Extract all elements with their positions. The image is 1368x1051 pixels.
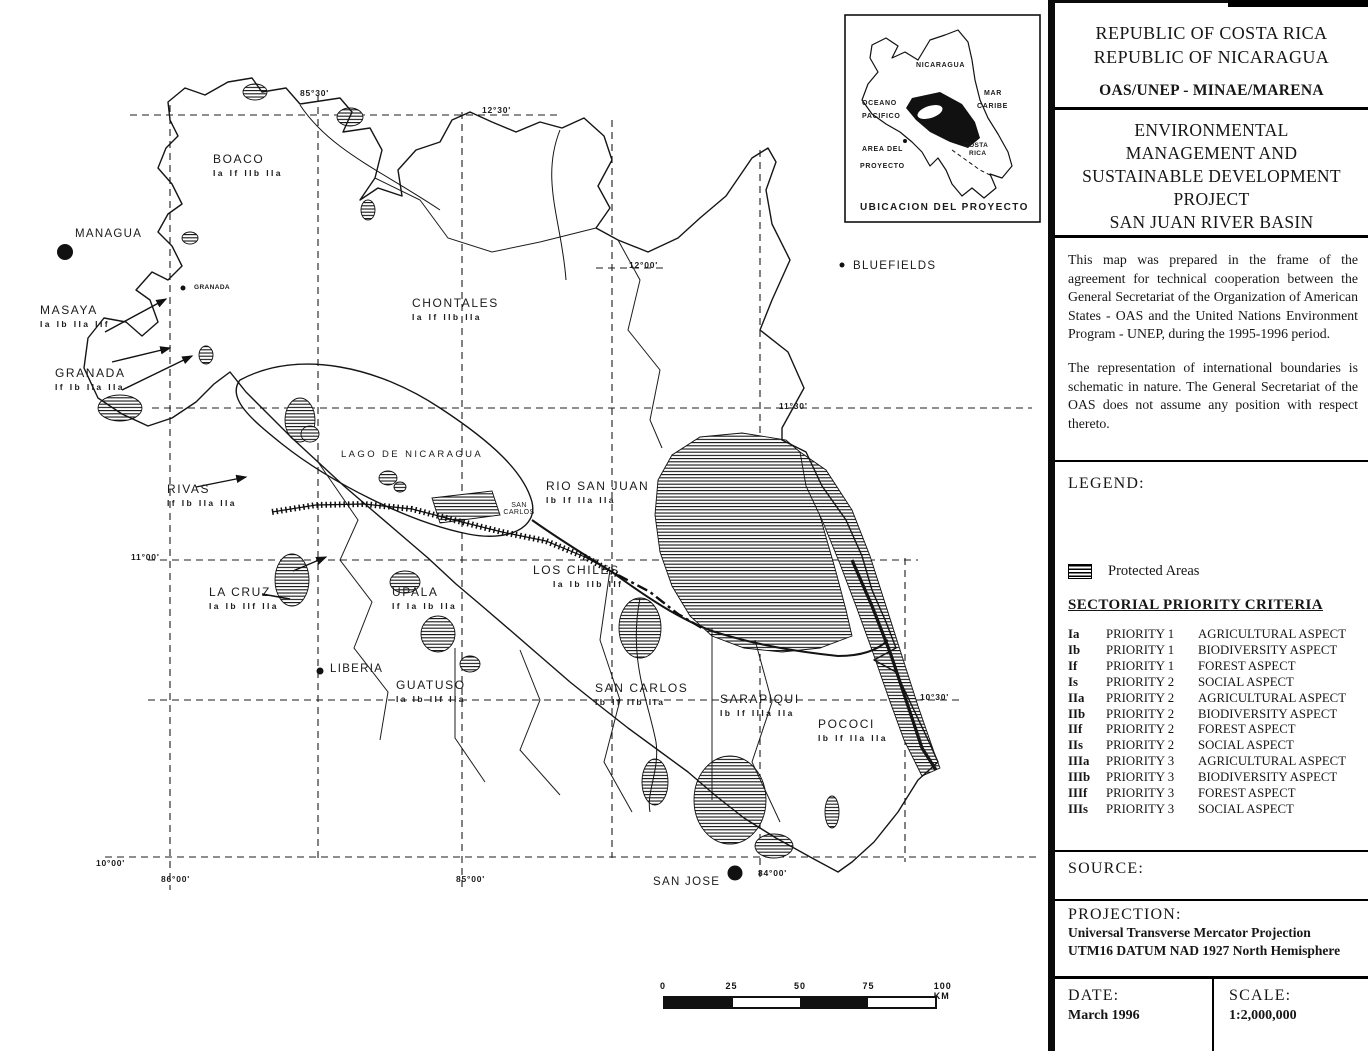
liberia-dot [317, 668, 324, 675]
scalebar-bar [663, 996, 937, 1009]
project-title-line: SAN JUAN RIVER BASIN [1055, 211, 1368, 234]
date-scale-block: DATE: March 1996 SCALE: 1:2,000,000 [1055, 979, 1368, 1051]
criteria-priority: PRIORITY 2 [1106, 738, 1198, 754]
scale-value: 1:2,000,000 [1229, 1008, 1368, 1024]
project-title-line: PROJECT [1055, 188, 1368, 211]
criteria-aspect: SOCIAL ASPECT [1198, 738, 1294, 754]
legend-heading: LEGEND: [1068, 475, 1360, 493]
date-label: DATE: [1068, 987, 1212, 1005]
criteria-priority: PRIORITY 2 [1106, 675, 1198, 691]
criteria-code: IIIa [1068, 754, 1106, 770]
criteria-aspect: FOREST ASPECT [1198, 722, 1296, 738]
protected-areas-swatch-icon [1068, 564, 1092, 579]
criteria-priority: PRIORITY 1 [1106, 627, 1198, 643]
criteria-aspect: SOCIAL ASPECT [1198, 675, 1294, 691]
criteria-priority: PRIORITY 1 [1106, 659, 1198, 675]
scale-cell: SCALE: 1:2,000,000 [1212, 979, 1368, 1051]
title-block: REPUBLIC OF COSTA RICA REPUBLIC OF NICAR… [1055, 3, 1368, 110]
criteria-code: IIIs [1068, 802, 1106, 818]
criteria-code: If [1068, 659, 1106, 675]
criteria-heading: SECTORIAL PRIORITY CRITERIA [1068, 597, 1360, 614]
criteria-priority: PRIORITY 2 [1106, 722, 1198, 738]
criteria-row: IsPRIORITY 2SOCIAL ASPECT [1068, 675, 1360, 691]
source-label: SOURCE: [1068, 860, 1368, 878]
criteria-code: IIa [1068, 691, 1106, 707]
criteria-row: IIsPRIORITY 2SOCIAL ASPECT [1068, 738, 1360, 754]
bluefields-dot [840, 263, 845, 268]
notes-block: This map was prepared in the frame of th… [1055, 238, 1368, 462]
criteria-code: IIIf [1068, 786, 1106, 802]
country-title-2: REPUBLIC OF NICARAGUA [1055, 45, 1368, 69]
note-paragraph-2: The representation of international boun… [1068, 359, 1358, 433]
scale-bar: 0255075100 KM [663, 981, 937, 1011]
criteria-aspect: AGRICULTURAL ASPECT [1198, 627, 1346, 643]
criteria-row: IIIfPRIORITY 3FOREST ASPECT [1068, 786, 1360, 802]
protected-areas-row: Protected Areas [1068, 563, 1360, 580]
criteria-row: IIIsPRIORITY 3SOCIAL ASPECT [1068, 802, 1360, 818]
criteria-priority: PRIORITY 1 [1106, 643, 1198, 659]
managua-dot [57, 244, 73, 260]
criteria-code: IIIb [1068, 770, 1106, 786]
projection-block: PROJECTION: Universal Transverse Mercato… [1055, 901, 1368, 979]
project-title-line: ENVIRONMENTAL [1055, 119, 1368, 142]
criteria-priority: PRIORITY 2 [1106, 707, 1198, 723]
criteria-row: IaPRIORITY 1AGRICULTURAL ASPECT [1068, 627, 1360, 643]
project-title-block: ENVIRONMENTAL MANAGEMENT AND SUSTAINABLE… [1055, 110, 1368, 238]
criteria-aspect: SOCIAL ASPECT [1198, 802, 1294, 818]
date-cell: DATE: March 1996 [1055, 979, 1212, 1051]
projection-label: PROJECTION: [1068, 906, 1368, 924]
map-canvas [0, 0, 1048, 1051]
info-panel: REPUBLIC OF COSTA RICA REPUBLIC OF NICAR… [1048, 0, 1368, 1051]
criteria-row: IIIaPRIORITY 3AGRICULTURAL ASPECT [1068, 754, 1360, 770]
criteria-aspect: FOREST ASPECT [1198, 659, 1296, 675]
criteria-aspect: BIODIVERSITY ASPECT [1198, 707, 1337, 723]
granada-dot [181, 286, 186, 291]
criteria-row: IIIbPRIORITY 3BIODIVERSITY ASPECT [1068, 770, 1360, 786]
criteria-aspect: BIODIVERSITY ASPECT [1198, 770, 1337, 786]
scale-label: SCALE: [1229, 987, 1368, 1005]
project-title-line: MANAGEMENT AND [1055, 142, 1368, 165]
scan-artifact-bar [1228, 0, 1368, 7]
projection-line-2: UTM16 DATUM NAD 1927 North Hemisphere [1068, 942, 1368, 960]
san-jose-dot [728, 866, 743, 881]
source-block: SOURCE: [1055, 852, 1368, 901]
projection-line-1: Universal Transverse Mercator Projection [1068, 924, 1368, 942]
scalebar-tick: 50 [794, 981, 806, 991]
scalebar-segment [733, 998, 801, 1007]
criteria-aspect: BIODIVERSITY ASPECT [1198, 643, 1337, 659]
inset-map [845, 15, 1040, 222]
criteria-priority: PRIORITY 3 [1106, 786, 1198, 802]
protected-areas [98, 84, 940, 858]
scalebar-segment [868, 998, 936, 1007]
main-map: BOACOIa If IIb IIaCHONTALESIa If IIb IIa… [0, 0, 1048, 1051]
scalebar-tick: 75 [862, 981, 874, 991]
criteria-priority: PRIORITY 3 [1106, 802, 1198, 818]
project-title-line: SUSTAINABLE DEVELOPMENT [1055, 165, 1368, 188]
criteria-row: IIbPRIORITY 2BIODIVERSITY ASPECT [1068, 707, 1360, 723]
criteria-code: Ia [1068, 627, 1106, 643]
scalebar-tick: 25 [725, 981, 737, 991]
criteria-priority: PRIORITY 3 [1106, 754, 1198, 770]
protected-areas-label: Protected Areas [1108, 563, 1199, 580]
scalebar-ticks: 0255075100 KM [663, 981, 937, 994]
criteria-aspect: AGRICULTURAL ASPECT [1198, 691, 1346, 707]
criteria-list: IaPRIORITY 1AGRICULTURAL ASPECTIbPRIORIT… [1068, 627, 1360, 818]
date-value: March 1996 [1068, 1008, 1212, 1024]
criteria-aspect: AGRICULTURAL ASPECT [1198, 754, 1346, 770]
criteria-code: Is [1068, 675, 1106, 691]
criteria-aspect: FOREST ASPECT [1198, 786, 1296, 802]
criteria-priority: PRIORITY 3 [1106, 770, 1198, 786]
criteria-row: IfPRIORITY 1FOREST ASPECT [1068, 659, 1360, 675]
note-paragraph-1: This map was prepared in the frame of th… [1068, 251, 1358, 344]
criteria-code: IIf [1068, 722, 1106, 738]
criteria-code: IIs [1068, 738, 1106, 754]
legend-block: LEGEND: Protected Areas SECTORIAL PRIORI… [1055, 462, 1368, 852]
criteria-row: IIfPRIORITY 2FOREST ASPECT [1068, 722, 1360, 738]
criteria-row: IbPRIORITY 1BIODIVERSITY ASPECT [1068, 643, 1360, 659]
scalebar-segment [665, 998, 733, 1007]
scalebar-tick: 0 [660, 981, 666, 991]
country-title-1: REPUBLIC OF COSTA RICA [1055, 21, 1368, 45]
criteria-priority: PRIORITY 2 [1106, 691, 1198, 707]
criteria-row: IIaPRIORITY 2AGRICULTURAL ASPECT [1068, 691, 1360, 707]
criteria-code: IIb [1068, 707, 1106, 723]
scalebar-segment [800, 998, 868, 1007]
organizations-line: OAS/UNEP - MINAE/MARENA [1055, 82, 1368, 100]
criteria-code: Ib [1068, 643, 1106, 659]
